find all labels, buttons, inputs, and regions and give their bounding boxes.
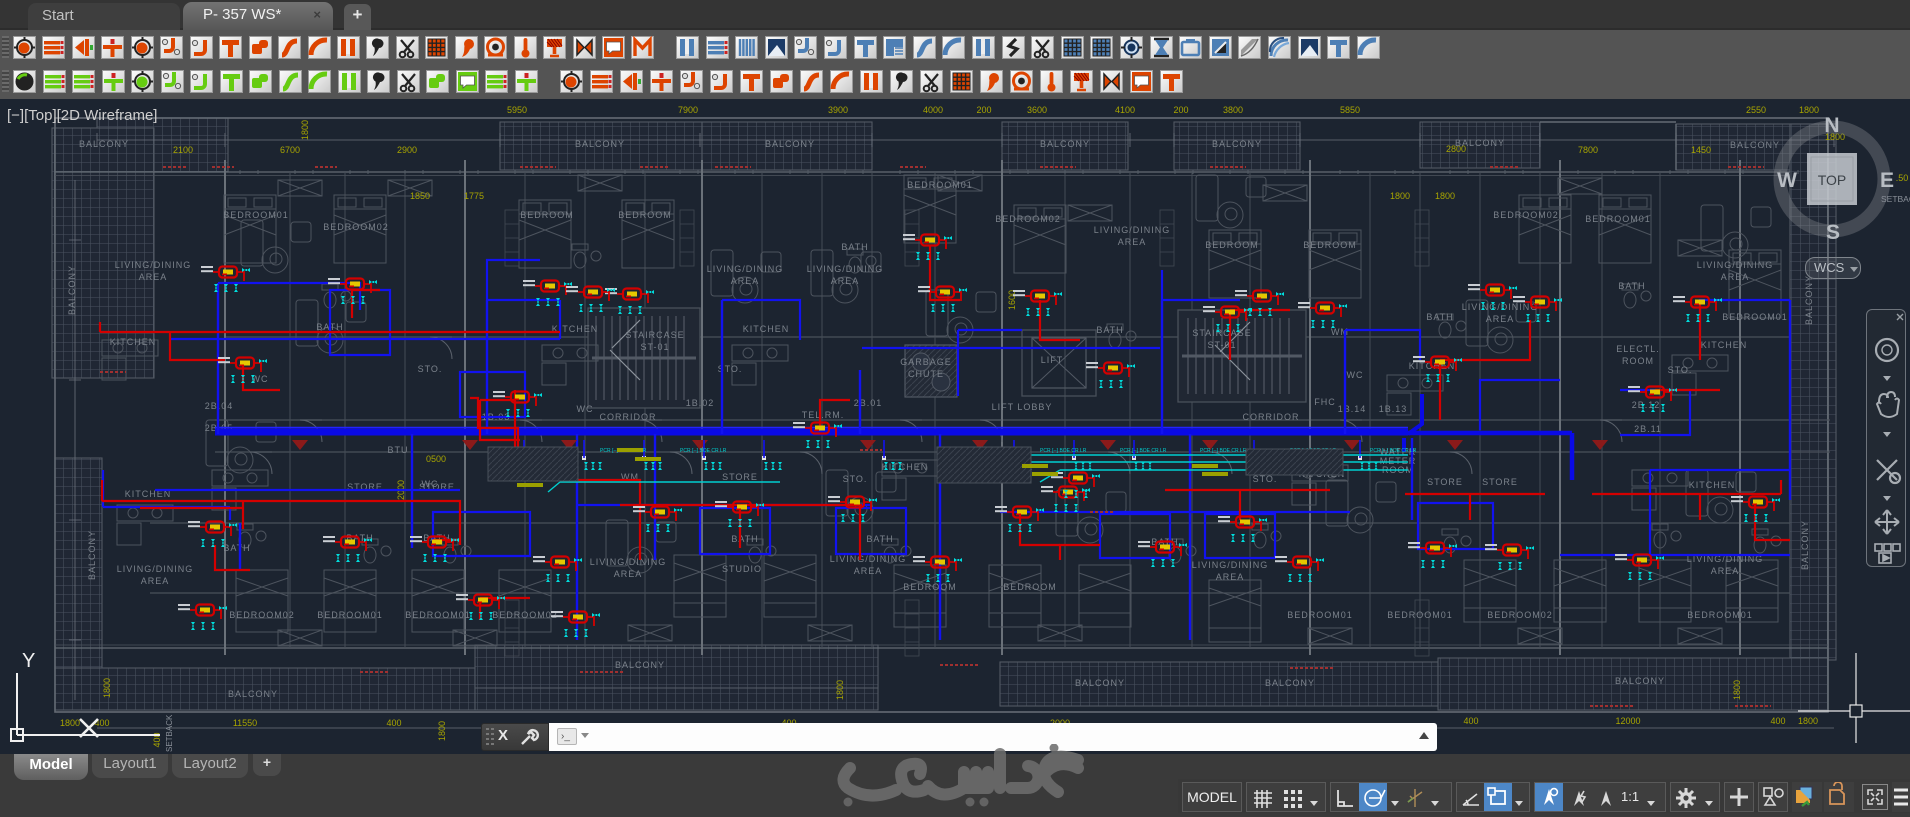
svg-text:SETBAC: SETBAC bbox=[1881, 194, 1910, 204]
svg-text:5850: 5850 bbox=[1340, 105, 1360, 115]
svg-text:3800: 3800 bbox=[1223, 105, 1243, 115]
svg-text:1B.13: 1B.13 bbox=[1379, 404, 1408, 414]
svg-text:BATH: BATH bbox=[731, 534, 758, 544]
svg-text:BEDROOM02: BEDROOM02 bbox=[995, 214, 1061, 224]
svg-text:CORRIDOR: CORRIDOR bbox=[1243, 412, 1300, 422]
svg-text:AREA: AREA bbox=[1486, 314, 1515, 324]
svg-text:2900: 2900 bbox=[397, 145, 417, 155]
svg-text:LIFT: LIFT bbox=[1041, 355, 1064, 365]
svg-text:BEDROOM02: BEDROOM02 bbox=[1487, 610, 1553, 620]
svg-text:LIVING/DINING: LIVING/DINING bbox=[1697, 260, 1774, 270]
svg-text:BALCONY: BALCONY bbox=[1804, 275, 1814, 325]
svg-text:LIVING/DINING: LIVING/DINING bbox=[1094, 225, 1171, 235]
svg-text:LIVING/DINING: LIVING/DINING bbox=[115, 260, 192, 270]
svg-text:WC: WC bbox=[1347, 370, 1364, 380]
svg-text:BEDROOM02: BEDROOM02 bbox=[1493, 210, 1559, 220]
svg-text:FHC: FHC bbox=[1314, 397, 1336, 407]
svg-text:1800: 1800 bbox=[835, 680, 845, 700]
svg-text:3900: 3900 bbox=[828, 105, 848, 115]
svg-text:ELECTL.: ELECTL. bbox=[1616, 344, 1660, 354]
svg-text:1800: 1800 bbox=[1435, 191, 1455, 201]
svg-text:2B.11: 2B.11 bbox=[1634, 424, 1662, 434]
svg-text:AREA: AREA bbox=[831, 276, 860, 286]
svg-text:BATH: BATH bbox=[1618, 281, 1645, 291]
svg-text:LIVING/DINING: LIVING/DINING bbox=[830, 554, 907, 564]
svg-text:ROOM: ROOM bbox=[1622, 356, 1654, 366]
svg-text:STAIRCASE: STAIRCASE bbox=[1192, 328, 1251, 338]
svg-text:WM: WM bbox=[1331, 327, 1349, 337]
svg-text:N: N bbox=[1824, 114, 1839, 137]
svg-text:STO.: STO. bbox=[843, 474, 868, 484]
svg-text:7900: 7900 bbox=[678, 105, 698, 115]
svg-text:400: 400 bbox=[386, 718, 401, 728]
svg-text:AREA: AREA bbox=[1721, 272, 1750, 282]
svg-text:BALCONY: BALCONY bbox=[1455, 138, 1505, 148]
svg-text:BEDROOM01: BEDROOM01 bbox=[1287, 610, 1353, 620]
svg-text:5950: 5950 bbox=[507, 105, 527, 115]
svg-text:7800: 7800 bbox=[1578, 145, 1598, 155]
svg-text:LIVING/DINING: LIVING/DINING bbox=[707, 264, 784, 274]
svg-text:2B.01: 2B.01 bbox=[854, 398, 883, 408]
svg-text:PCR [--] BOE CR LR: PCR [--] BOE CR LR bbox=[680, 448, 727, 454]
svg-text:BALCONY: BALCONY bbox=[765, 139, 815, 149]
svg-text:AREA: AREA bbox=[141, 576, 170, 586]
svg-text:AREA: AREA bbox=[614, 569, 643, 579]
svg-text:1850: 1850 bbox=[410, 191, 430, 201]
svg-text:AREA: AREA bbox=[139, 272, 168, 282]
svg-text:BALCONY: BALCONY bbox=[615, 660, 665, 670]
svg-text:BEDROOM: BEDROOM bbox=[1003, 582, 1057, 592]
svg-text:LIVING/DINING: LIVING/DINING bbox=[1462, 302, 1539, 312]
svg-text:LIFT LOBBY: LIFT LOBBY bbox=[992, 402, 1053, 412]
svg-text:WC: WC bbox=[577, 404, 594, 414]
svg-text:200: 200 bbox=[1173, 105, 1188, 115]
svg-text:200: 200 bbox=[976, 105, 991, 115]
svg-text:BEDROOM02: BEDROOM02 bbox=[492, 610, 558, 620]
svg-text:STORE: STORE bbox=[1482, 477, 1518, 487]
svg-text:3600: 3600 bbox=[1027, 105, 1047, 115]
svg-text:1600: 1600 bbox=[1007, 290, 1017, 310]
svg-text:BALCONY: BALCONY bbox=[79, 139, 129, 149]
svg-text:12000: 12000 bbox=[1615, 716, 1640, 726]
svg-text:1800: 1800 bbox=[437, 721, 447, 741]
svg-text:PCR [--] BOE CR LR: PCR [--] BOE CR LR bbox=[1200, 448, 1247, 454]
svg-text:BEDROOM01: BEDROOM01 bbox=[317, 610, 383, 620]
svg-text:Y: Y bbox=[22, 650, 35, 672]
svg-text:STUDIO: STUDIO bbox=[722, 564, 762, 574]
svg-text:CHUTE: CHUTE bbox=[908, 369, 944, 379]
svg-text:BEDROOM02: BEDROOM02 bbox=[229, 610, 295, 620]
svg-text:BEDROOM01: BEDROOM01 bbox=[1722, 312, 1788, 322]
svg-text:.50: .50 bbox=[1896, 173, 1909, 183]
svg-text:KITCHEN: KITCHEN bbox=[743, 324, 790, 334]
svg-text:2550: 2550 bbox=[1746, 105, 1766, 115]
svg-text:AREA: AREA bbox=[854, 566, 883, 576]
svg-text:BALCONY: BALCONY bbox=[1040, 139, 1090, 149]
svg-text:4000: 4000 bbox=[923, 105, 943, 115]
svg-text:1B.14: 1B.14 bbox=[1338, 404, 1367, 414]
svg-text:E: E bbox=[1880, 169, 1894, 192]
svg-text:STO.: STO. bbox=[1668, 365, 1693, 375]
svg-text:AREA: AREA bbox=[1216, 572, 1245, 582]
svg-text:1B.02: 1B.02 bbox=[686, 398, 715, 408]
svg-text:STORE: STORE bbox=[722, 472, 758, 482]
svg-text:BATH: BATH bbox=[223, 543, 250, 553]
svg-text:BALCONY: BALCONY bbox=[228, 689, 278, 699]
svg-text:BEDROOM: BEDROOM bbox=[1303, 240, 1357, 250]
svg-text:BATH: BATH bbox=[1096, 325, 1123, 335]
svg-text:S: S bbox=[1826, 221, 1840, 244]
svg-text:BEDROOM: BEDROOM bbox=[618, 210, 672, 220]
svg-text:LIVING/DINING: LIVING/DINING bbox=[807, 264, 884, 274]
svg-text:1800: 1800 bbox=[300, 120, 310, 140]
svg-text:LIVING/DINING: LIVING/DINING bbox=[1192, 560, 1269, 570]
svg-text:400: 400 bbox=[1770, 716, 1785, 726]
svg-text:CORRIDOR: CORRIDOR bbox=[600, 412, 657, 422]
svg-text:BEDROOM01: BEDROOM01 bbox=[1387, 610, 1453, 620]
svg-text:STORE: STORE bbox=[1427, 477, 1463, 487]
svg-text:BEDROOM01: BEDROOM01 bbox=[907, 180, 973, 190]
svg-text:BTU: BTU bbox=[388, 445, 409, 455]
svg-text:BATH: BATH bbox=[866, 534, 893, 544]
svg-text:W: W bbox=[1777, 169, 1797, 192]
svg-text:KITCHEN: KITCHEN bbox=[1701, 340, 1748, 350]
svg-text:BALCONY: BALCONY bbox=[1800, 520, 1810, 570]
svg-text:PCR [--] BOE CR LR: PCR [--] BOE CR LR bbox=[1370, 448, 1417, 454]
svg-text:BALCONY: BALCONY bbox=[67, 265, 77, 315]
svg-text:1775: 1775 bbox=[464, 191, 484, 201]
svg-text:BALCONY: BALCONY bbox=[1615, 676, 1665, 686]
svg-text:BEDROOM01: BEDROOM01 bbox=[1687, 610, 1753, 620]
svg-text:2100: 2100 bbox=[173, 145, 193, 155]
svg-text:PCR [--] BOE CR LR: PCR [--] BOE CR LR bbox=[1120, 448, 1167, 454]
svg-text:BATH: BATH bbox=[1426, 312, 1453, 322]
svg-text:AREA: AREA bbox=[1711, 566, 1740, 576]
svg-text:AREA: AREA bbox=[1118, 237, 1147, 247]
svg-text:BALCONY: BALCONY bbox=[575, 139, 625, 149]
svg-text:KITCHEN: KITCHEN bbox=[1689, 480, 1736, 490]
svg-text:AREA: AREA bbox=[731, 276, 760, 286]
svg-text:2B.12: 2B.12 bbox=[1632, 400, 1661, 410]
svg-text:BALCONY: BALCONY bbox=[1212, 139, 1262, 149]
svg-text:400: 400 bbox=[1463, 716, 1478, 726]
svg-text:0500: 0500 bbox=[426, 454, 446, 464]
svg-text:1800: 1800 bbox=[1732, 680, 1742, 700]
svg-text:BEDROOM01: BEDROOM01 bbox=[405, 610, 471, 620]
svg-text:BATH: BATH bbox=[841, 242, 868, 252]
svg-text:TEL.RM.: TEL.RM. bbox=[802, 410, 845, 420]
svg-text:11550: 11550 bbox=[233, 718, 257, 728]
svg-text:BEDROOM01: BEDROOM01 bbox=[223, 210, 289, 220]
svg-text:BEDROOM: BEDROOM bbox=[520, 210, 574, 220]
svg-text:BALCONY: BALCONY bbox=[1265, 678, 1315, 688]
svg-text:6700: 6700 bbox=[280, 145, 300, 155]
svg-text:STO.: STO. bbox=[418, 364, 443, 374]
svg-text:1450: 1450 bbox=[1691, 145, 1711, 155]
svg-text:LIVING/DINING: LIVING/DINING bbox=[117, 564, 194, 574]
svg-text:BEDROOM02: BEDROOM02 bbox=[323, 222, 389, 232]
svg-text:4100: 4100 bbox=[1115, 105, 1135, 115]
svg-text:BALCONY: BALCONY bbox=[87, 530, 97, 580]
svg-text:BEDROOM: BEDROOM bbox=[1205, 240, 1259, 250]
svg-text:BEDROOM01: BEDROOM01 bbox=[1585, 214, 1651, 224]
svg-text:BALCONY: BALCONY bbox=[1075, 678, 1125, 688]
svg-text:PCR [--] BOE CR LR: PCR [--] BOE CR LR bbox=[1040, 448, 1087, 454]
svg-text:1800: 1800 bbox=[1390, 191, 1410, 201]
svg-text:ST-01: ST-01 bbox=[640, 342, 669, 352]
svg-text:KITCHEN: KITCHEN bbox=[882, 462, 929, 472]
svg-text:KITCHEN: KITCHEN bbox=[110, 337, 157, 347]
svg-text:BEDROOM: BEDROOM bbox=[903, 582, 957, 592]
svg-text:TOP: TOP bbox=[1818, 172, 1847, 188]
svg-text:ST-01: ST-01 bbox=[1207, 340, 1236, 350]
svg-text:GARBAGE: GARBAGE bbox=[900, 357, 952, 367]
svg-text:STAIRCASE: STAIRCASE bbox=[625, 330, 684, 340]
